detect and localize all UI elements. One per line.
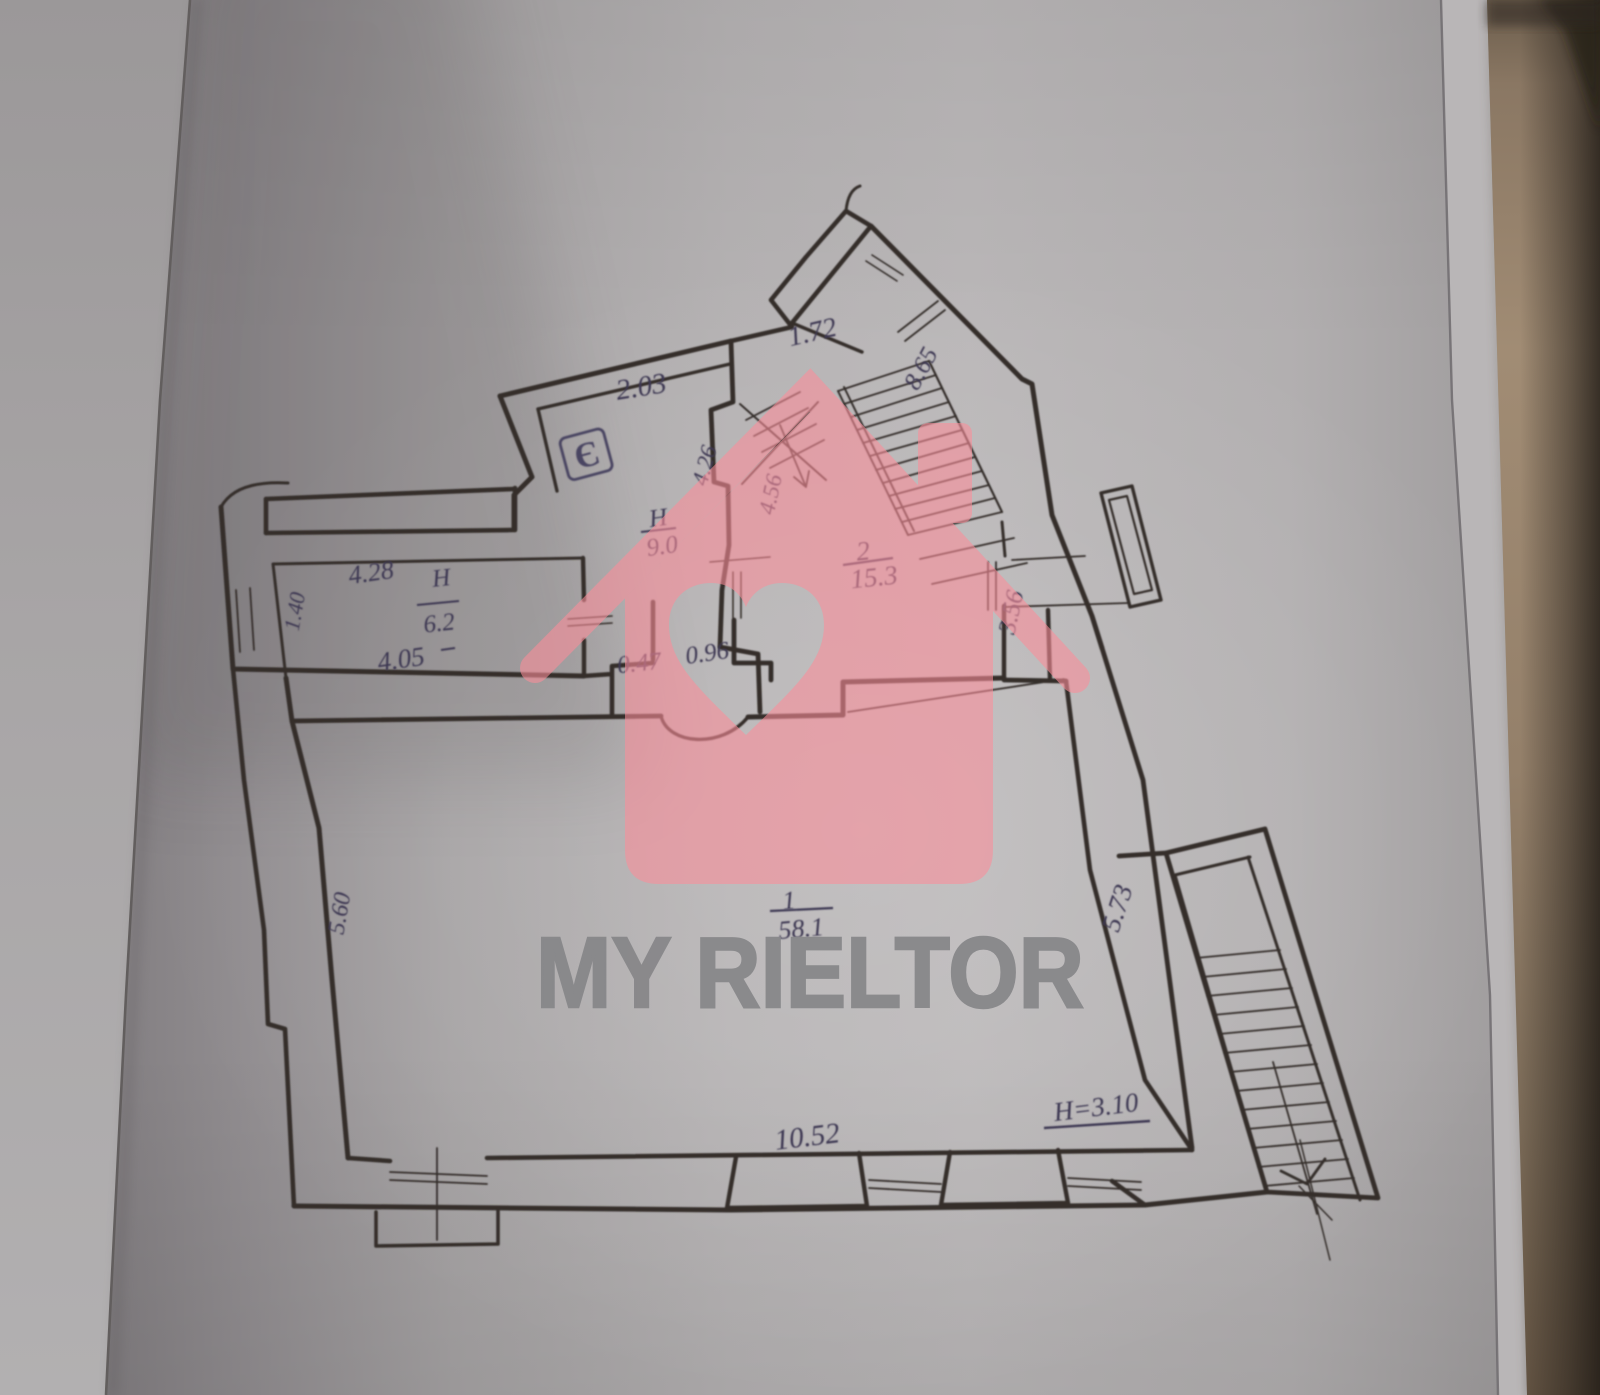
svg-text:MY RIELTOR: MY RIELTOR [536,917,1084,1029]
svg-text:6.2: 6.2 [422,608,456,638]
